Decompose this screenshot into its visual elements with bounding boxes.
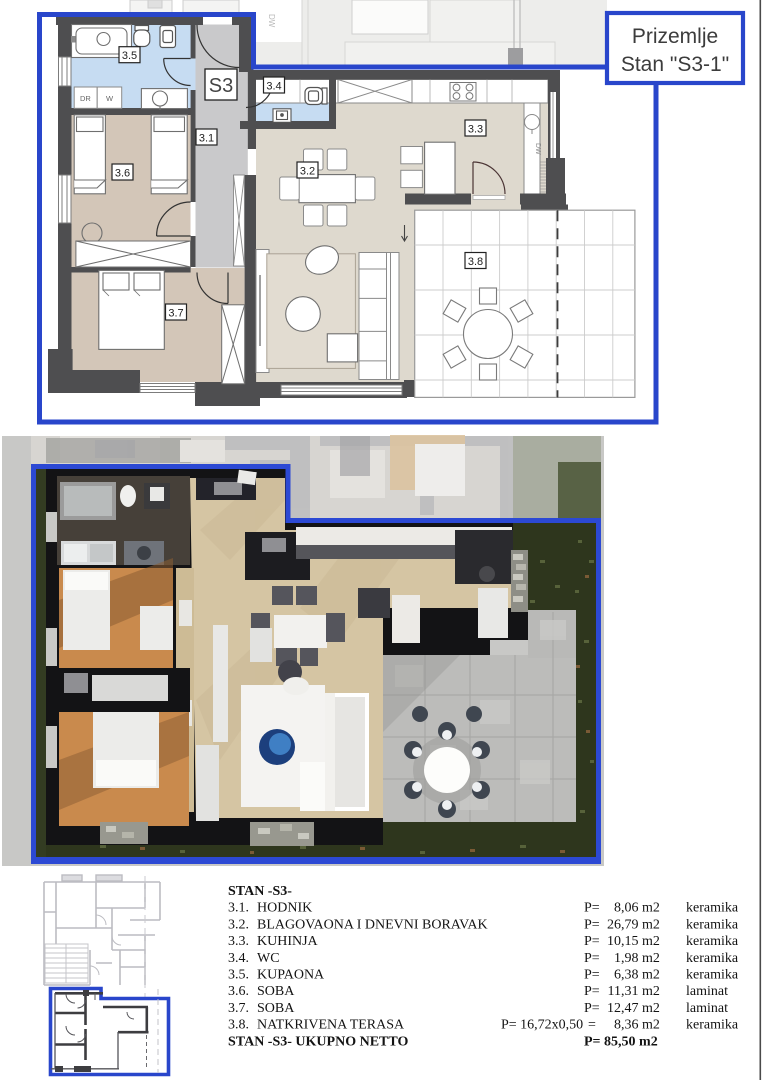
svg-text:m2: m2 <box>642 901 660 916</box>
svg-text:m2: m2 <box>642 1001 660 1016</box>
svg-text:m2: m2 <box>642 917 660 932</box>
svg-text:=: = <box>588 1018 596 1033</box>
svg-text:m2: m2 <box>642 1018 660 1033</box>
svg-text:WC: WC <box>257 951 280 966</box>
svg-text:Stan "S3-1": Stan "S3-1" <box>621 53 729 76</box>
svg-text:3.5.: 3.5. <box>228 968 249 983</box>
svg-text:11,31: 11,31 <box>608 984 639 999</box>
svg-text:keramika: keramika <box>686 951 739 966</box>
svg-text:12,47: 12,47 <box>607 1001 639 1016</box>
svg-text:3.6: 3.6 <box>115 168 130 180</box>
svg-text:P=: P= <box>584 901 600 916</box>
svg-text:3.1: 3.1 <box>199 133 214 145</box>
svg-text:DR: DR <box>80 94 91 103</box>
svg-text:P=: P= <box>584 951 600 966</box>
svg-text:3.4: 3.4 <box>266 81 281 93</box>
svg-text:KUHINJA: KUHINJA <box>257 934 319 949</box>
svg-text:SOBA: SOBA <box>257 1001 295 1016</box>
svg-text:3.3.: 3.3. <box>228 934 249 949</box>
svg-text:KUPAONA: KUPAONA <box>257 968 325 983</box>
svg-text:P=: P= <box>584 1001 600 1016</box>
svg-text:W: W <box>106 94 114 103</box>
svg-text:STAN -S3- UKUPNO NETTO: STAN -S3- UKUPNO NETTO <box>228 1034 408 1049</box>
svg-text:HODNIK: HODNIK <box>257 901 312 916</box>
svg-text:laminat: laminat <box>686 984 728 999</box>
svg-text:3.2: 3.2 <box>300 166 315 178</box>
svg-text:10,15: 10,15 <box>607 934 639 949</box>
svg-text:keramika: keramika <box>686 917 739 932</box>
svg-text:P=: P= <box>584 968 600 983</box>
svg-text:3.5: 3.5 <box>122 50 137 62</box>
svg-text:1,98: 1,98 <box>614 951 639 966</box>
svg-text:S3: S3 <box>209 75 233 97</box>
svg-text:3.4.: 3.4. <box>228 951 249 966</box>
svg-text:STAN -S3-: STAN -S3- <box>228 884 292 899</box>
svg-text:keramika: keramika <box>686 1018 739 1033</box>
svg-text:3.2.: 3.2. <box>228 917 249 932</box>
svg-text:SOBA: SOBA <box>257 984 295 999</box>
svg-text:P=: P= <box>584 984 600 999</box>
svg-text:keramika: keramika <box>686 901 739 916</box>
svg-text:DW: DW <box>534 143 541 155</box>
svg-text:3.8.: 3.8. <box>228 1018 249 1033</box>
svg-text:m2: m2 <box>642 968 660 983</box>
svg-text:BLAGOVAONA I DNEVNI BORAVAK: BLAGOVAONA I DNEVNI BORAVAK <box>257 917 488 932</box>
svg-text:3.8: 3.8 <box>468 256 483 268</box>
svg-text:P= 85,50 m2: P= 85,50 m2 <box>584 1034 658 1049</box>
svg-text:NATKRIVENA TERASA: NATKRIVENA TERASA <box>257 1018 405 1033</box>
svg-text:laminat: laminat <box>686 1001 728 1016</box>
svg-text:26,79: 26,79 <box>607 917 639 932</box>
svg-text:8,06: 8,06 <box>614 901 639 916</box>
svg-text:3.7.: 3.7. <box>228 1001 249 1016</box>
svg-text:P= 16,72x0,50: P= 16,72x0,50 <box>501 1018 583 1033</box>
svg-text:keramika: keramika <box>686 934 739 949</box>
svg-text:3.1.: 3.1. <box>228 901 249 916</box>
svg-text:3.3: 3.3 <box>468 124 483 136</box>
svg-text:m2: m2 <box>642 984 660 999</box>
svg-text:3.7: 3.7 <box>168 308 183 320</box>
svg-text:m2: m2 <box>642 951 660 966</box>
svg-text:6,38: 6,38 <box>614 968 639 983</box>
svg-text:Prizemlje: Prizemlje <box>632 25 718 48</box>
svg-text:P=: P= <box>584 917 600 932</box>
svg-text:keramika: keramika <box>686 968 739 983</box>
svg-text:8,36: 8,36 <box>614 1018 639 1033</box>
svg-text:m2: m2 <box>642 934 660 949</box>
svg-text:3.6.: 3.6. <box>228 984 249 999</box>
svg-text:DW: DW <box>267 14 276 28</box>
svg-text:P=: P= <box>584 934 600 949</box>
